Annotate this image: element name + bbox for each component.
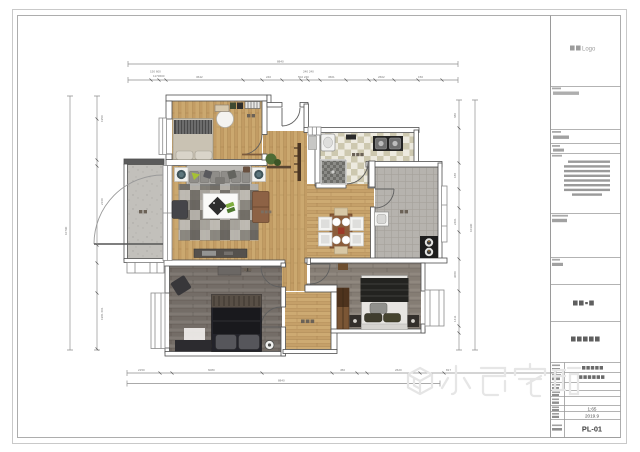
svg-text:PL-01: PL-01 (582, 425, 602, 434)
svg-text:2160: 2160 (100, 198, 104, 205)
svg-text:1:65: 1:65 (588, 406, 597, 411)
svg-text:2401: 2401 (453, 218, 457, 225)
svg-text:817: 817 (446, 368, 451, 372)
svg-text:Logo: Logo (582, 46, 596, 52)
svg-text:3080: 3080 (453, 271, 457, 278)
svg-text:8840: 8840 (277, 60, 284, 64)
svg-text:2019.9: 2019.9 (585, 413, 599, 418)
svg-text:150: 150 (418, 75, 423, 79)
svg-text:2602: 2602 (378, 75, 385, 79)
svg-text:1981 601: 1981 601 (100, 307, 104, 320)
svg-text:450: 450 (340, 368, 345, 372)
svg-text:188: 188 (453, 173, 457, 178)
svg-text:6080: 6080 (208, 368, 215, 372)
svg-text:1950: 1950 (100, 115, 104, 122)
svg-text:1173600: 1173600 (153, 74, 165, 78)
svg-text:3601: 3601 (328, 75, 335, 79)
svg-text:240: 240 (266, 75, 271, 79)
svg-text:8840: 8840 (278, 379, 285, 383)
svg-text:150 600: 150 600 (150, 70, 161, 74)
svg-text:2620: 2620 (395, 368, 402, 372)
svg-text:10390: 10390 (469, 223, 473, 232)
svg-text:502 240: 502 240 (298, 75, 309, 79)
svg-text:240 240: 240 240 (303, 70, 314, 74)
svg-text:1411: 1411 (453, 315, 457, 322)
svg-text:2150: 2150 (138, 368, 145, 372)
svg-text:3642: 3642 (196, 75, 203, 79)
svg-text:680: 680 (453, 113, 457, 118)
svg-text:10790: 10790 (64, 226, 68, 235)
